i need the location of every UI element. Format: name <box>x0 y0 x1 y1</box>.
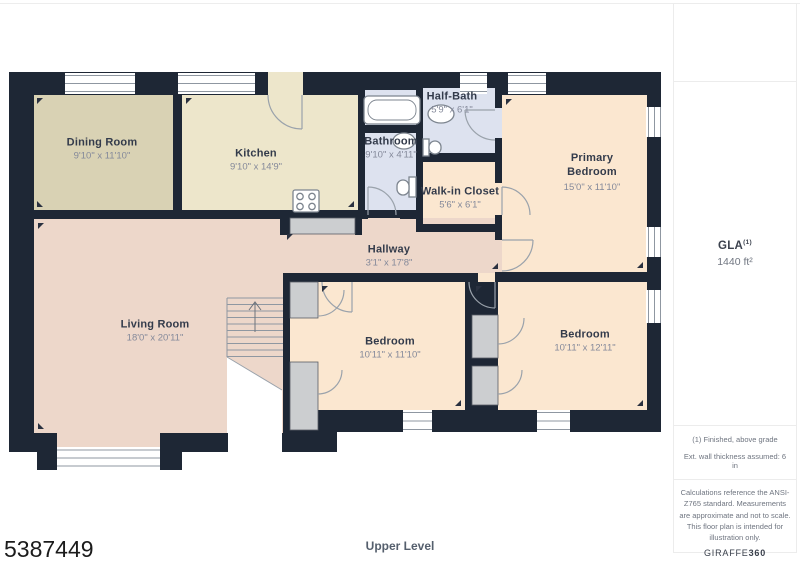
photo-id: 5387449 <box>4 536 94 563</box>
closet-icon <box>472 366 498 405</box>
sink-icon <box>393 133 415 149</box>
toilet-icon <box>423 139 441 156</box>
gla-box: GLA(1) 1440 ft² <box>673 82 797 426</box>
floor-plan-page: Dining Room 9'10" x 11'10" Kitchen 9'10"… <box>0 0 800 565</box>
bathtub-icon <box>364 96 420 124</box>
sink-icon <box>428 105 454 123</box>
dining-room-area <box>34 95 173 210</box>
info-sidebar: GLA(1) 1440 ft² (1) Finished, above grad… <box>673 3 797 553</box>
level-label: Upper Level <box>366 539 435 553</box>
kitchen-counter-icon <box>290 218 355 234</box>
window-icon <box>65 73 135 94</box>
walk-in-closet-area <box>423 162 495 224</box>
window-icon <box>178 73 255 94</box>
room-fills <box>34 72 647 447</box>
primary-bedroom-area <box>502 95 647 272</box>
gla-value: 1440 ft² <box>717 256 753 268</box>
note-wall-thickness: Ext. wall thickness assumed: 6 in <box>680 452 790 470</box>
window-icon <box>646 107 662 137</box>
closet-icon <box>290 282 318 318</box>
giraffe360-logo: GIRAFFE360 <box>679 548 791 558</box>
disclaimer-text: Calculations reference the ANSI-Z765 sta… <box>679 487 791 543</box>
note-finished-above-grade: (1) Finished, above grade <box>680 435 790 444</box>
closet-icon <box>290 362 318 430</box>
window-icon <box>460 73 487 94</box>
disclaimer-box: Calculations reference the ANSI-Z765 sta… <box>673 480 797 553</box>
window-icon <box>508 73 546 94</box>
closet-icon <box>472 315 498 358</box>
window-icon <box>646 290 662 323</box>
sliding-door-icon <box>57 447 160 470</box>
kitchen-area <box>182 95 358 210</box>
stove-icon <box>293 190 319 212</box>
notes-box: (1) Finished, above grade Ext. wall thic… <box>673 426 797 480</box>
sidebar-logo-box <box>673 3 797 82</box>
window-icon <box>537 410 570 432</box>
window-icon <box>403 410 432 432</box>
gla-label: GLA(1) <box>718 239 752 252</box>
window-icon <box>646 227 662 257</box>
